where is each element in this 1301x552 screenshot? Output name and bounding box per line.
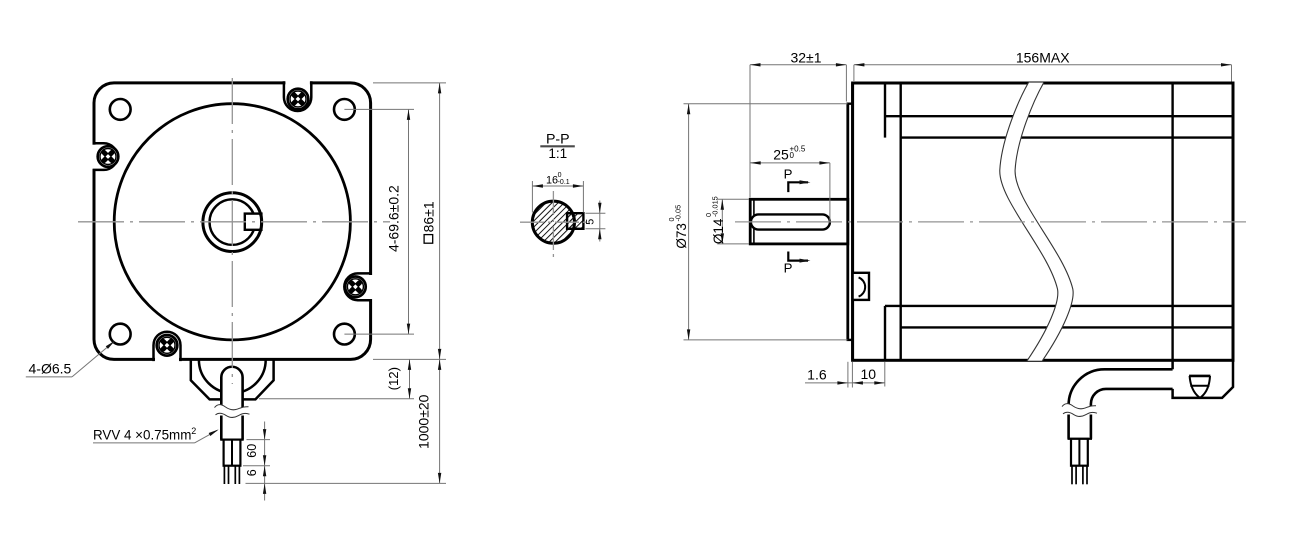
svg-text:1:1: 1:1: [548, 146, 567, 161]
svg-text:RVV 4 ×0.75mm: RVV 4 ×0.75mm: [93, 428, 191, 443]
svg-text:4-69.6±0.2: 4-69.6±0.2: [386, 185, 402, 252]
svg-text:-0.05: -0.05: [674, 205, 683, 222]
svg-text:-0.1: -0.1: [558, 179, 570, 186]
svg-text:32±1: 32±1: [790, 50, 821, 66]
svg-text:Ø14: Ø14: [711, 218, 726, 244]
svg-text:1.6: 1.6: [807, 366, 827, 382]
svg-text:25: 25: [773, 147, 789, 163]
svg-text:(12): (12): [386, 367, 401, 390]
svg-text:4-Ø6.5: 4-Ø6.5: [29, 360, 72, 376]
svg-text:-0.015: -0.015: [711, 196, 720, 217]
svg-text:2: 2: [191, 426, 196, 436]
svg-text:P: P: [784, 261, 793, 276]
svg-text:86±1: 86±1: [420, 201, 436, 232]
svg-text:5: 5: [584, 219, 596, 225]
svg-text:156MAX: 156MAX: [1016, 50, 1070, 66]
svg-text:P: P: [784, 166, 793, 181]
svg-text:0: 0: [790, 151, 795, 160]
svg-text:Ø73: Ø73: [674, 223, 689, 249]
svg-text:60: 60: [245, 444, 259, 458]
svg-text:1000±20: 1000±20: [416, 394, 432, 449]
svg-text:10: 10: [861, 366, 877, 382]
svg-text:16: 16: [546, 174, 558, 186]
svg-text:6: 6: [245, 469, 259, 476]
